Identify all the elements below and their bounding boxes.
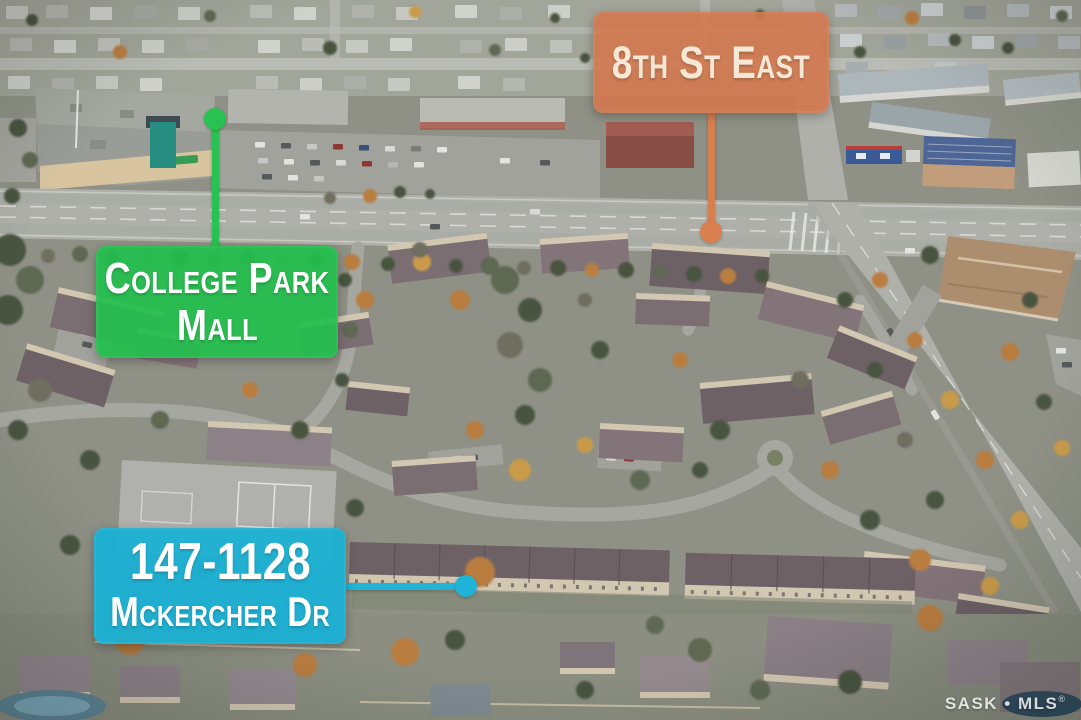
property-callout-line2: Mckercher Dr (110, 588, 330, 636)
property-location-dot (455, 575, 477, 597)
property-leader-line (343, 583, 466, 590)
mall-leader-line (212, 119, 219, 246)
street-callout-label: 8th St East (612, 39, 810, 87)
property-callout-line1: 147-1128 (129, 536, 310, 588)
sask-mls-watermark: SASK • MLS® (945, 694, 1065, 714)
watermark-brand: SASK • MLS (945, 694, 1059, 713)
street-callout: 8th St East (593, 12, 829, 113)
street-location-dot (700, 221, 722, 243)
property-callout: 147-1128 Mckercher Dr (94, 528, 346, 644)
mall-callout-line2: Mall (176, 302, 257, 349)
aerial-listing-photo: .t1{fill:#46523d}.t2{fill:#5c6750}.t3{fi… (0, 0, 1081, 720)
street-leader-line (708, 113, 715, 232)
mall-callout-line1: College Park (105, 255, 330, 302)
mall-callout: College Park Mall (96, 246, 338, 358)
watermark-registered-mark: ® (1058, 694, 1065, 704)
mall-location-dot (204, 108, 226, 130)
